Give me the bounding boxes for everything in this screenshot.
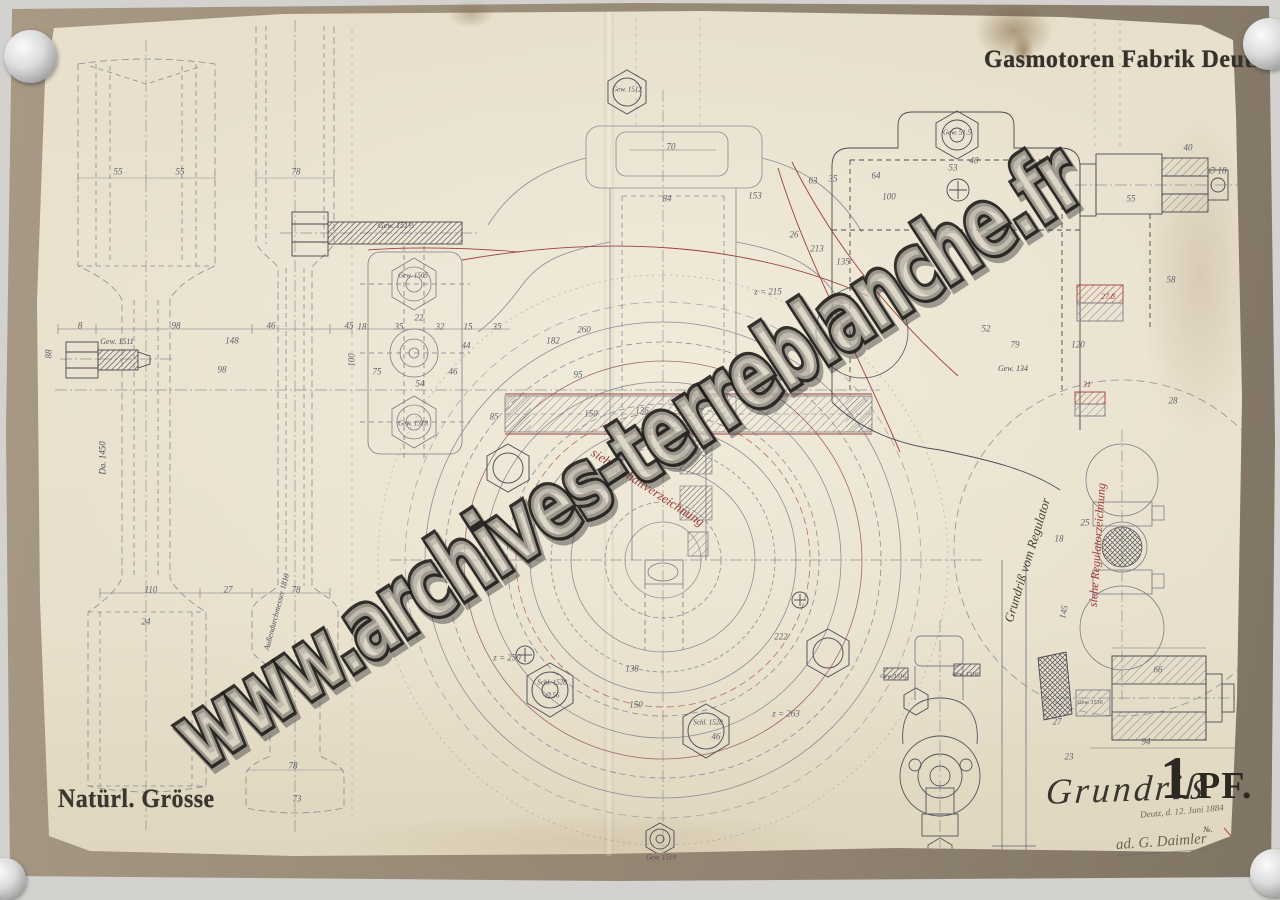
rating-number: 1 xyxy=(1160,748,1190,808)
mounting-magnet-top-left xyxy=(4,30,57,83)
rating-unit: PF. xyxy=(1197,764,1252,808)
watermark-text: www.archives-terreblanche.fr xyxy=(153,120,1102,791)
engine-rating: 1 PF. xyxy=(1160,748,1252,808)
manufacturer-title: Gasmotoren Fabrik Deutz xyxy=(984,46,1264,74)
scale-note: Natürl. Grösse xyxy=(58,784,215,814)
scanned-drawing-photo: 555578898464588981481102778247873Da. 145… xyxy=(0,0,1280,884)
watermark: www.archives-terreblanche.fr www.archive… xyxy=(0,0,1280,884)
